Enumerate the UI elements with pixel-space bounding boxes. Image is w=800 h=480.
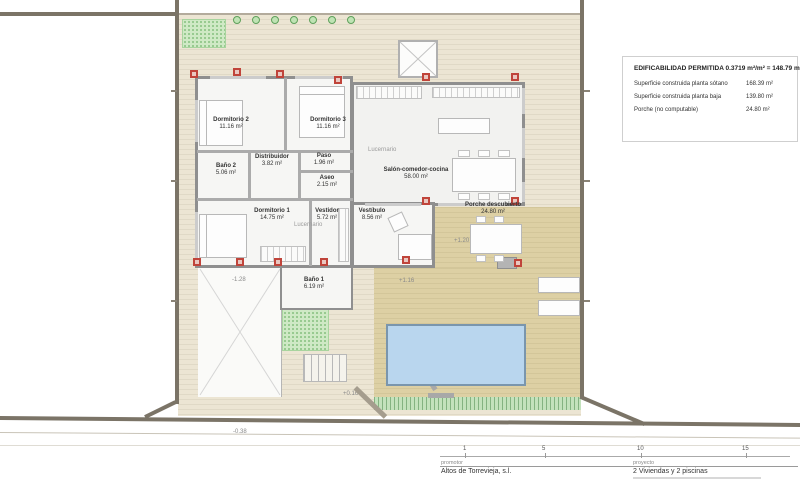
room-area: 5.06 m² <box>216 170 236 177</box>
room-label-bano1: Baño 1 6.19 m² <box>304 277 324 291</box>
room-name: Vestidor <box>315 208 339 215</box>
kitchen-counter <box>356 86 422 99</box>
edificability-info-box: EDIFICABILIDAD PERMITIDA 0.3719 m²/m² = … <box>622 56 798 142</box>
room-area: 2.15 m² <box>317 182 337 189</box>
level-label-porche: +1.20 <box>454 238 469 244</box>
chair <box>494 255 504 262</box>
plant-icon <box>290 16 298 24</box>
survey-tick <box>171 90 177 92</box>
survey-tick <box>171 300 177 302</box>
truncated-address-line <box>633 477 761 479</box>
skylight-icon <box>398 40 438 78</box>
info-row-value: 168.39 m² <box>746 81 786 87</box>
room-name: Baño 1 <box>304 277 324 284</box>
room-name: Dormitorio 3 <box>310 117 346 124</box>
scale-tick-5: 5 <box>542 446 545 452</box>
room-area: 11.16 m² <box>310 124 346 131</box>
column-marker <box>236 258 244 266</box>
window <box>522 128 525 158</box>
room-name: Aseo <box>317 175 337 182</box>
room-area: 14.75 m² <box>254 215 290 222</box>
plant-icon <box>328 16 336 24</box>
chair <box>458 193 470 200</box>
window <box>522 88 525 114</box>
wardrobe <box>338 208 349 262</box>
room-label-dormitorio1: Dormitorio 1 14.75 m² <box>254 208 290 222</box>
plant-icon <box>233 16 241 24</box>
plant-icon <box>252 16 260 24</box>
info-box-row: Superficie construida planta baja 139.80… <box>634 94 786 100</box>
survey-tick <box>171 180 177 182</box>
proyecto-name: 2 Viviendas y 2 piscinas <box>633 468 708 475</box>
level-label-terraza: +1.16 <box>399 278 414 284</box>
level-label-rampa: -1.28 <box>232 277 246 283</box>
info-row-label: Superficie construida planta sótano <box>634 81 746 87</box>
info-row-value: 24.80 m² <box>746 107 786 113</box>
exterior-stairs <box>303 354 347 382</box>
column-marker <box>422 73 430 81</box>
room-label-vestidor: Vestidor 5.72 m² <box>315 208 339 222</box>
room-area: 24.80 m² <box>465 209 521 216</box>
partition-wall <box>309 200 312 266</box>
column-marker <box>514 259 522 267</box>
room-area: 1.96 m² <box>314 160 334 167</box>
chair <box>498 150 510 157</box>
column-marker <box>320 258 328 266</box>
scale-bar-tick <box>746 453 747 458</box>
ramp-diagonals-icon <box>198 267 282 397</box>
room-label-distribuidor: Distribuidor 3.82 m² <box>255 154 289 168</box>
room-name: Baño 2 <box>216 163 236 170</box>
info-row-label: Porche (no computable) <box>634 107 746 113</box>
room-label-salon: Salón-comedor-cocina 58.00 m² <box>384 167 449 181</box>
garden-strip <box>374 397 581 410</box>
chair <box>476 255 486 262</box>
sun-lounger <box>538 300 580 316</box>
room-label-aseo: Aseo 2.15 m² <box>317 175 337 189</box>
room-name: Porche descubierto <box>465 202 521 209</box>
room-area: 11.16 m² <box>213 124 249 131</box>
column-marker <box>233 68 241 76</box>
plant-icon <box>347 16 355 24</box>
boundary-line-top-inner <box>178 13 581 15</box>
chair <box>494 216 504 223</box>
room-area: 8.56 m² <box>359 215 386 222</box>
window <box>195 212 198 258</box>
room-name: Vestíbulo <box>359 208 386 215</box>
plant-icon <box>309 16 317 24</box>
room-name: Paso <box>314 153 334 160</box>
lucernario-label: Lucernario <box>294 222 322 228</box>
info-box-row: Porche (no computable) 24.80 m² <box>634 107 786 113</box>
porch-table <box>470 224 522 254</box>
retaining-wall <box>428 393 454 398</box>
scale-bar-tick <box>641 453 642 458</box>
boundary-line-bottom <box>0 416 800 427</box>
chair <box>498 193 510 200</box>
bed-pillow <box>199 214 207 258</box>
room-name: Dormitorio 2 <box>213 117 249 124</box>
survey-tick <box>584 300 590 302</box>
chair <box>478 193 490 200</box>
boundary-line-right <box>580 0 584 397</box>
room-name: Dormitorio 1 <box>254 208 290 215</box>
chair <box>458 150 470 157</box>
sun-lounger <box>538 277 580 293</box>
lucernario-label: Lucernario <box>368 147 396 153</box>
glass-door <box>365 203 421 206</box>
column-marker <box>193 258 201 266</box>
column-marker <box>190 70 198 78</box>
room-area: 6.19 m² <box>304 284 324 291</box>
info-box-row: Superficie construida planta sótano 168.… <box>634 81 786 87</box>
window <box>522 182 525 202</box>
plant-icon <box>271 16 279 24</box>
promotor-name: Altos de Torrevieja, s.l. <box>441 468 511 475</box>
partition-wall <box>284 78 287 152</box>
scale-bar-line <box>440 456 790 457</box>
road-line <box>0 432 800 439</box>
bed-pillow <box>299 86 345 95</box>
chair <box>476 216 486 223</box>
boundary-line-left <box>175 0 179 404</box>
room-label-porche: Porche descubierto 24.80 m² <box>465 202 521 216</box>
floor-plan-sheet: Dormitorio 2 11.16 m² Dormitorio 3 11.16… <box>0 0 800 480</box>
boundary-diagonal-left <box>144 400 176 418</box>
room-name: Distribuidor <box>255 154 289 161</box>
column-marker <box>334 76 342 84</box>
column-marker <box>422 197 430 205</box>
column-marker <box>402 256 410 264</box>
scale-bar-tick <box>545 453 546 458</box>
partition-wall <box>298 152 301 200</box>
swimming-pool <box>386 324 526 386</box>
survey-tick <box>584 90 590 92</box>
window <box>210 76 266 79</box>
scale-tick-15: 15 <box>742 446 749 452</box>
column-marker <box>511 73 519 81</box>
dining-table <box>452 158 516 192</box>
partition-wall <box>248 152 251 200</box>
room-label-bano2: Baño 2 5.06 m² <box>216 163 236 177</box>
column-marker <box>274 258 282 266</box>
driveway-ramp <box>198 267 282 397</box>
kitchen-counter <box>432 87 520 98</box>
column-marker <box>276 70 284 78</box>
scale-tick-1: 1 <box>463 446 466 452</box>
room-label-dormitorio3: Dormitorio 3 11.16 m² <box>310 117 346 131</box>
boundary-line-top <box>0 12 178 16</box>
room-area: 3.82 m² <box>255 161 289 168</box>
road-line <box>0 445 800 446</box>
scale-bar-tick <box>465 453 466 458</box>
room-label-dormitorio2: Dormitorio 2 11.16 m² <box>213 117 249 131</box>
partition-wall <box>197 198 353 201</box>
partition-wall <box>300 170 353 173</box>
kitchen-island <box>438 118 490 134</box>
title-block-divider <box>632 466 798 467</box>
room-label-vestibulo: Vestíbulo 8.56 m² <box>359 208 386 222</box>
room-label-paso: Paso 1.96 m² <box>314 153 334 167</box>
info-box-title: EDIFICABILIDAD PERMITIDA 0.3719 m²/m² = … <box>634 65 786 72</box>
room-area: 58.00 m² <box>384 174 449 181</box>
window <box>195 100 198 142</box>
info-row-value: 139.80 m² <box>746 94 786 100</box>
garden-patch-top <box>182 19 226 48</box>
wardrobe <box>260 246 306 262</box>
bed-pillow <box>199 100 207 146</box>
survey-tick <box>584 180 590 182</box>
scale-tick-10: 10 <box>637 446 644 452</box>
info-row-label: Superficie construida planta baja <box>634 94 746 100</box>
room-name: Salón-comedor-cocina <box>384 167 449 174</box>
chair <box>478 150 490 157</box>
